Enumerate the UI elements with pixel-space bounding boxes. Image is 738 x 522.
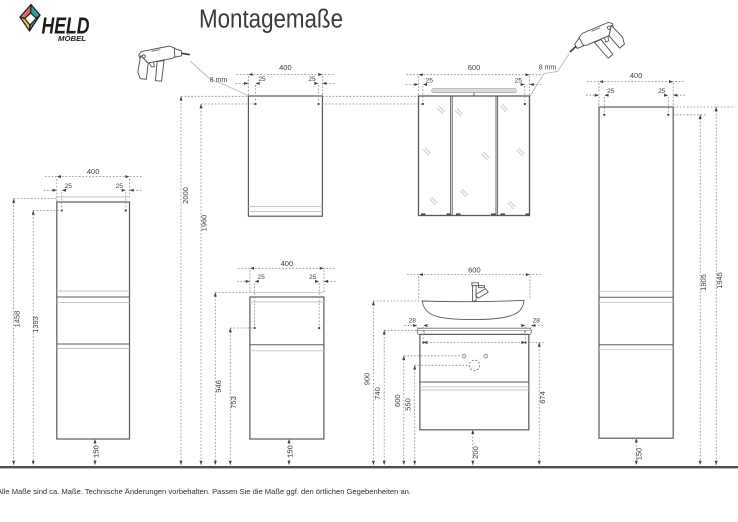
svg-text:25: 25 <box>257 274 265 281</box>
svg-text:200: 200 <box>471 446 480 459</box>
svg-text:8 mm: 8 mm <box>539 65 557 72</box>
svg-text:1393: 1393 <box>31 316 40 333</box>
svg-text:1905: 1905 <box>699 274 708 291</box>
svg-text:25: 25 <box>258 76 266 83</box>
svg-text:550: 550 <box>404 398 413 411</box>
svg-text:400: 400 <box>87 167 100 176</box>
svg-text:28: 28 <box>533 318 541 325</box>
svg-text:150: 150 <box>92 445 101 458</box>
svg-text:400: 400 <box>281 259 294 268</box>
svg-text:MÖBEL: MÖBEL <box>58 34 86 43</box>
svg-text:8 mm: 8 mm <box>210 77 228 84</box>
svg-text:25: 25 <box>607 88 615 95</box>
svg-text:Alle Maße sind ca. Maße. Techn: Alle Maße sind ca. Maße. Technische Ände… <box>0 487 411 496</box>
svg-text:25: 25 <box>658 88 666 95</box>
svg-text:674: 674 <box>538 391 547 404</box>
svg-text:25: 25 <box>116 183 124 190</box>
svg-text:400: 400 <box>279 63 292 72</box>
svg-text:25: 25 <box>309 274 317 281</box>
svg-text:600: 600 <box>468 265 481 274</box>
svg-text:28: 28 <box>409 318 417 325</box>
svg-text:600: 600 <box>393 394 402 407</box>
svg-text:1458: 1458 <box>12 311 21 328</box>
svg-text:2000: 2000 <box>181 187 190 204</box>
svg-text:Montagemaße: Montagemaße <box>199 6 343 34</box>
svg-text:1960: 1960 <box>200 215 209 232</box>
svg-text:900: 900 <box>362 373 371 386</box>
svg-text:1945: 1945 <box>715 272 724 289</box>
svg-text:150: 150 <box>634 448 643 461</box>
svg-text:600: 600 <box>468 63 481 72</box>
svg-text:25: 25 <box>65 183 73 190</box>
svg-text:740: 740 <box>373 387 382 400</box>
svg-text:753: 753 <box>229 396 238 409</box>
svg-text:25: 25 <box>308 76 316 83</box>
svg-text:946: 946 <box>214 380 223 393</box>
svg-text:25: 25 <box>426 77 434 84</box>
svg-text:150: 150 <box>286 445 295 458</box>
svg-text:400: 400 <box>630 71 643 80</box>
svg-text:25: 25 <box>515 77 523 84</box>
